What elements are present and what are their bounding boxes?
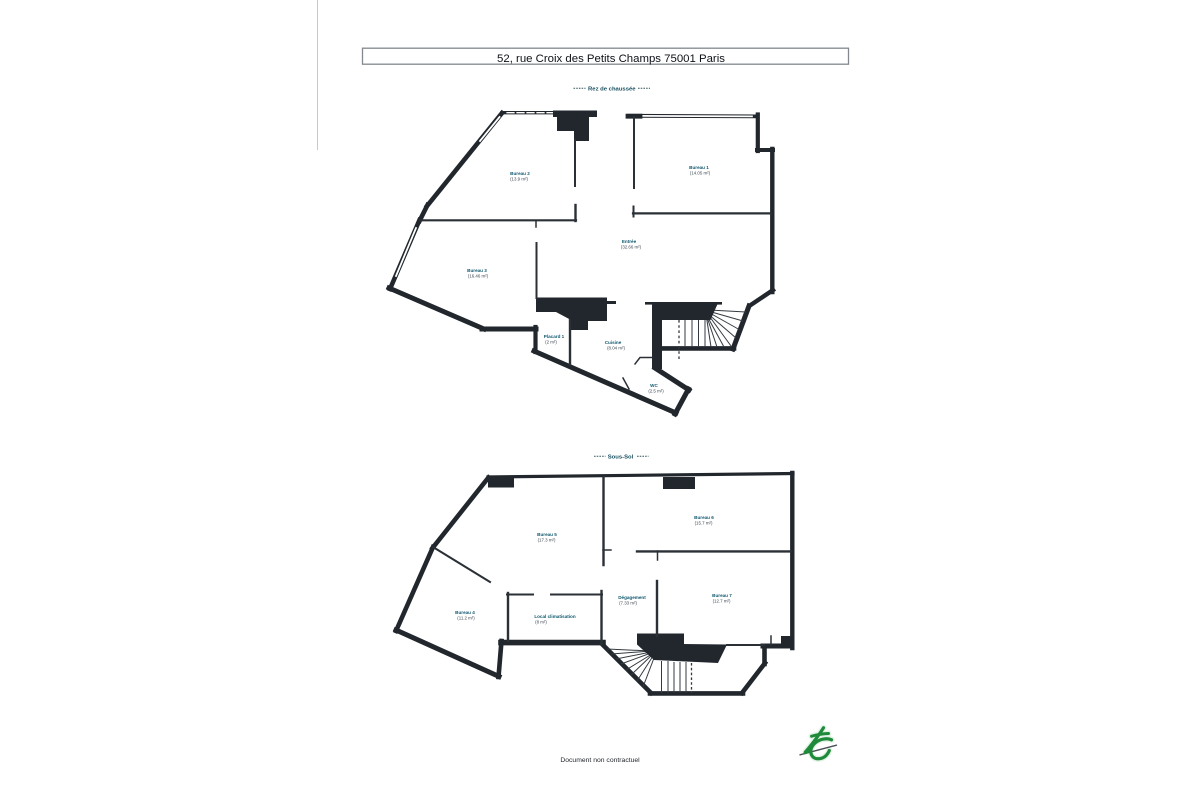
svg-text:52, rue Croix des Petits Champ: 52, rue Croix des Petits Champs 75001 Pa… — [497, 53, 725, 65]
svg-text:(17.3 m²): (17.3 m²) — [538, 538, 556, 543]
svg-text:(32.66 m²): (32.66 m²) — [621, 245, 642, 250]
svg-text:(2.5 m²): (2.5 m²) — [648, 389, 664, 394]
svg-text:Placard 1: Placard 1 — [544, 334, 565, 339]
svg-text:Bureau 3: Bureau 3 — [467, 268, 487, 273]
svg-text:(13.9 m²): (13.9 m²) — [510, 177, 528, 182]
svg-text:(12.7 m²): (12.7 m²) — [713, 599, 731, 604]
svg-text:Bureau 4: Bureau 4 — [455, 610, 475, 615]
svg-text:Sous-Sol: Sous-Sol — [608, 455, 634, 461]
svg-text:(11.2 m²): (11.2 m²) — [457, 616, 475, 621]
svg-text:Bureau 1: Bureau 1 — [689, 165, 709, 170]
svg-text:Bureau 2: Bureau 2 — [510, 171, 530, 176]
svg-text:Bureau 5: Bureau 5 — [537, 532, 557, 537]
svg-text:(2 m²): (2 m²) — [545, 340, 557, 345]
svg-text:Bureau 7: Bureau 7 — [712, 593, 732, 598]
svg-text:(7.33 m²): (7.33 m²) — [619, 601, 637, 606]
svg-text:(8 m²): (8 m²) — [535, 620, 547, 625]
svg-text:Cuisine: Cuisine — [605, 340, 622, 345]
svg-text:Rez de chaussée: Rez de chaussée — [588, 87, 636, 93]
svg-text:Local climatisation: Local climatisation — [534, 614, 576, 619]
svg-text:(16.46 m²): (16.46 m²) — [468, 274, 489, 279]
svg-text:Document non contractuel: Document non contractuel — [560, 757, 640, 764]
svg-text:Dégagement: Dégagement — [618, 595, 646, 600]
svg-text:(14.05 m²): (14.05 m²) — [690, 171, 711, 176]
svg-text:(8.04 m²): (8.04 m²) — [607, 346, 625, 351]
svg-text:(15.7 m²): (15.7 m²) — [695, 521, 713, 526]
svg-text:Entrée: Entrée — [622, 239, 637, 244]
svg-text:WC: WC — [650, 383, 658, 388]
svg-text:Bureau 6: Bureau 6 — [694, 515, 714, 520]
